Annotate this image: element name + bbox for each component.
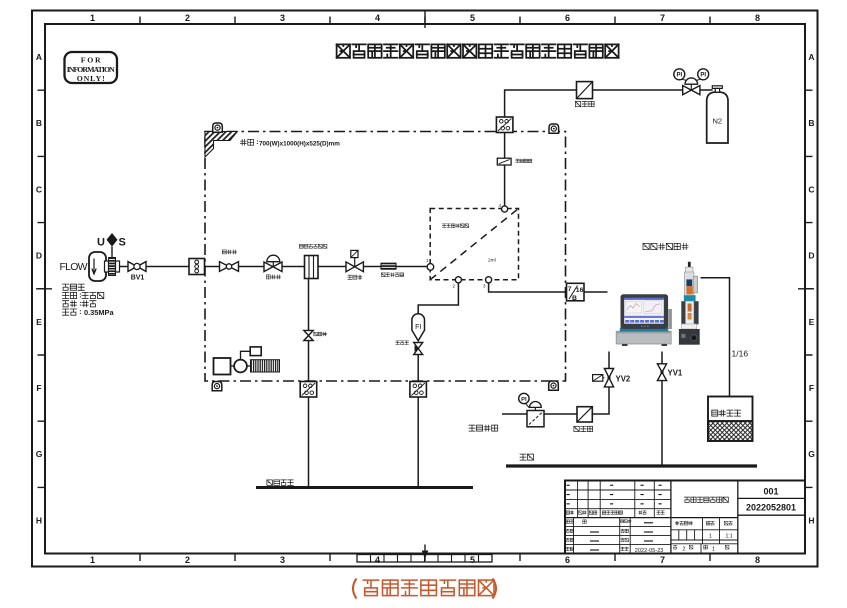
svg-text:B: B: [572, 295, 577, 302]
svg-text:E: E: [809, 317, 815, 327]
svg-text:7: 7: [660, 555, 665, 565]
svg-text:G: G: [36, 449, 43, 459]
svg-text:1/16: 1/16: [732, 349, 749, 359]
svg-text:BV1: BV1: [131, 275, 145, 282]
svg-text:U: U: [97, 237, 105, 249]
svg-text:PI: PI: [676, 73, 682, 79]
svg-text:B: B: [808, 118, 814, 128]
svg-text:E: E: [36, 317, 42, 327]
svg-text:2: 2: [683, 547, 686, 553]
svg-text:7: 7: [568, 286, 572, 293]
svg-text:FLOW: FLOW: [60, 261, 88, 273]
svg-text:ONLY!: ONLY!: [77, 74, 105, 83]
svg-text:8: 8: [755, 13, 760, 23]
svg-text:F: F: [36, 383, 41, 393]
svg-text:H: H: [808, 515, 814, 525]
svg-text:4: 4: [375, 13, 380, 23]
svg-text:4: 4: [375, 555, 380, 565]
svg-text:S: S: [119, 237, 126, 249]
svg-text:2: 2: [185, 555, 190, 565]
svg-text:6: 6: [565, 13, 570, 23]
svg-text:FOR: FOR: [81, 56, 101, 65]
svg-text:G: G: [808, 449, 815, 459]
svg-text:1: 1: [90, 555, 95, 565]
svg-text:5: 5: [470, 13, 475, 23]
svg-text:B: B: [36, 118, 42, 128]
svg-text:8: 8: [755, 555, 760, 565]
svg-text:5: 5: [470, 555, 475, 565]
svg-text:1: 1: [712, 547, 715, 553]
svg-text:3: 3: [280, 13, 285, 23]
svg-text:2022052801: 2022052801: [746, 503, 796, 513]
svg-text:6: 6: [565, 555, 570, 565]
svg-text:2ml: 2ml: [488, 258, 496, 264]
svg-text:INFORMATION: INFORMATION: [67, 65, 115, 74]
svg-text:2: 2: [185, 13, 190, 23]
svg-text:YV1: YV1: [668, 369, 683, 378]
svg-text:D: D: [36, 251, 42, 261]
svg-text:7: 7: [660, 13, 665, 23]
svg-text:A: A: [808, 52, 814, 62]
svg-text:YV2: YV2: [616, 375, 631, 384]
svg-text:1: 1: [709, 534, 712, 540]
svg-text:H: H: [36, 515, 42, 525]
svg-text:1:1: 1:1: [726, 534, 733, 540]
svg-text:700(W)x1000(H)x525(D)mm: 700(W)x1000(H)x525(D)mm: [259, 140, 340, 147]
svg-text:C: C: [36, 184, 42, 194]
svg-text:16: 16: [576, 287, 584, 294]
svg-text:1: 1: [90, 13, 95, 23]
svg-text:C: C: [808, 184, 814, 194]
svg-text:2022-05-23: 2022-05-23: [635, 548, 664, 554]
svg-text:0.35MPa: 0.35MPa: [84, 308, 114, 317]
svg-text:F: F: [809, 383, 814, 393]
svg-text:FI: FI: [415, 324, 421, 331]
svg-text:N2: N2: [713, 117, 723, 126]
svg-text:PI: PI: [521, 397, 527, 403]
svg-text:A: A: [36, 52, 42, 62]
svg-text:PI: PI: [700, 73, 706, 79]
svg-text:3: 3: [280, 555, 285, 565]
svg-text:001: 001: [763, 487, 778, 497]
svg-text:D: D: [808, 251, 814, 261]
